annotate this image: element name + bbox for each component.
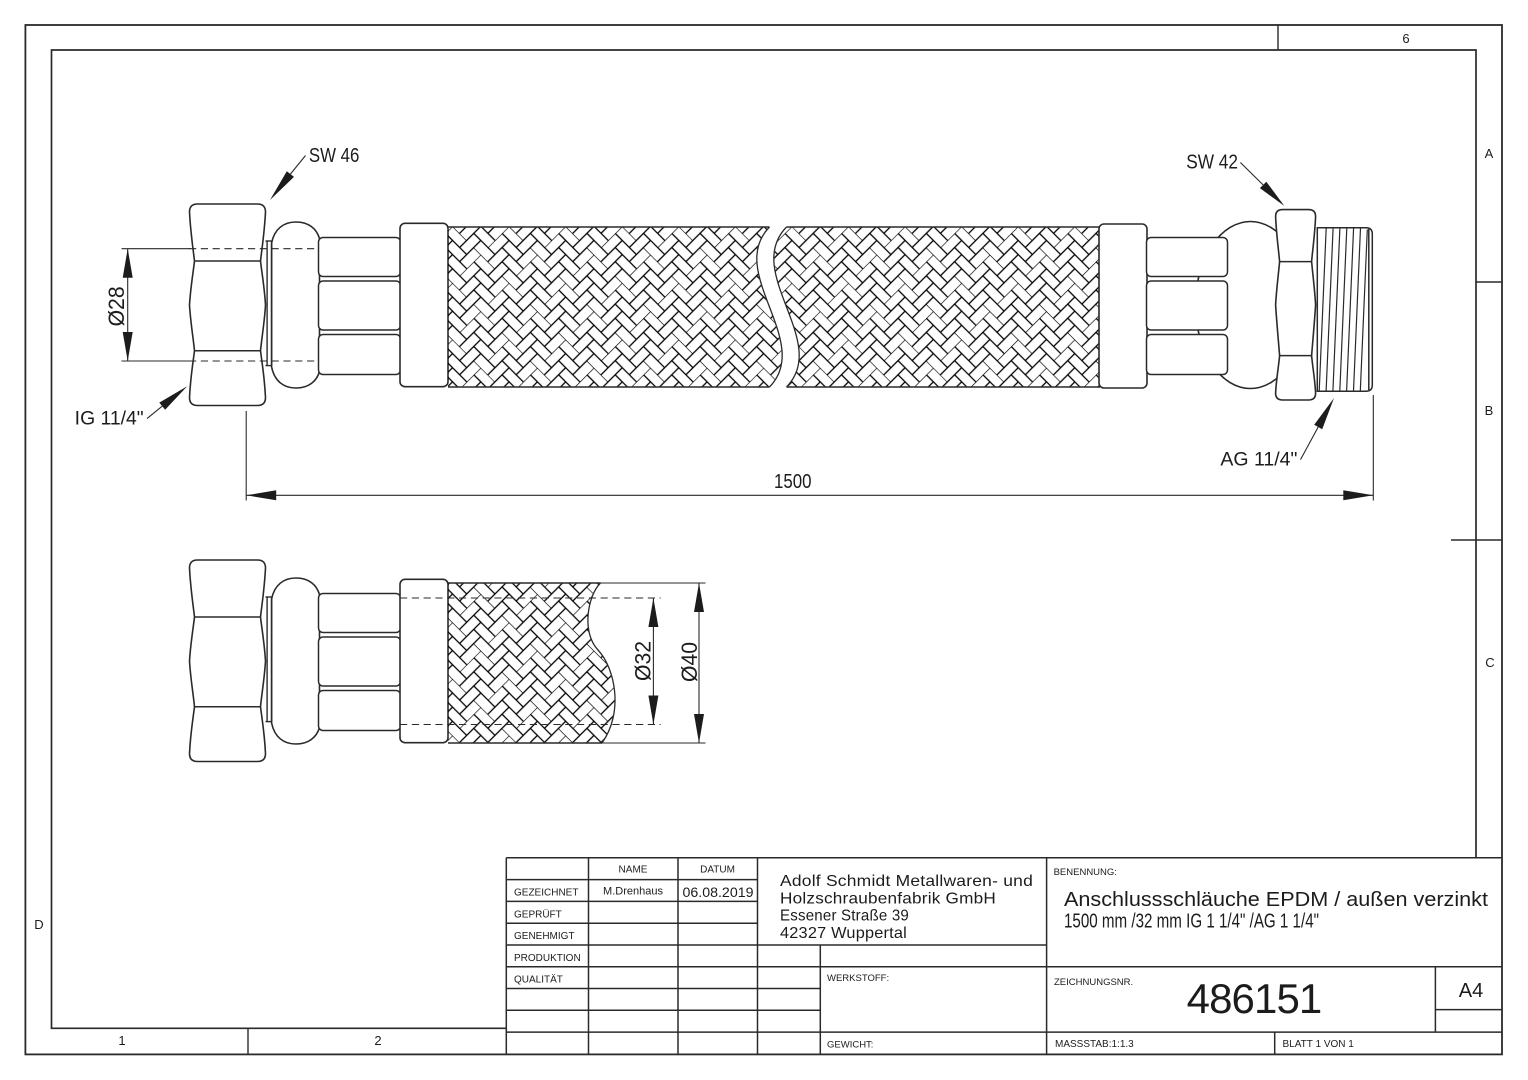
svg-text:486151: 486151 — [1187, 975, 1322, 1022]
svg-text:6: 6 — [1402, 31, 1409, 46]
svg-text:06.08.2019: 06.08.2019 — [683, 885, 754, 900]
svg-text:1500 mm /32 mm IG 1 1/4" /AG 1: 1500 mm /32 mm IG 1 1/4" /AG 1 1/4" — [1064, 911, 1319, 933]
svg-text:Ø40: Ø40 — [677, 642, 702, 682]
svg-text:GENEHMIGT: GENEHMIGT — [514, 931, 575, 942]
svg-text:D: D — [34, 917, 43, 932]
svg-text:Essener Straße 39: Essener Straße 39 — [780, 908, 909, 925]
svg-text:1: 1 — [118, 1033, 125, 1048]
svg-text:BENENNUNG:: BENENNUNG: — [1054, 867, 1117, 878]
svg-text:GEWICHT:: GEWICHT: — [827, 1039, 873, 1050]
svg-text:MASSSTAB:1:1.3: MASSSTAB:1:1.3 — [1055, 1039, 1134, 1050]
svg-text:B: B — [1485, 403, 1494, 418]
svg-text:WERKSTOFF:: WERKSTOFF: — [827, 973, 889, 984]
svg-text:Adolf Schmidt Metallwaren- und: Adolf Schmidt Metallwaren- und — [780, 873, 1033, 890]
svg-text:SW 42: SW 42 — [1186, 150, 1238, 173]
svg-text:42327 Wuppertal: 42327 Wuppertal — [780, 925, 907, 942]
svg-text:Anschlussschläuche EPDM / auße: Anschlussschläuche EPDM / außen verzinkt — [1064, 889, 1488, 911]
svg-text:C: C — [1485, 655, 1494, 670]
svg-text:QUALITÄT: QUALITÄT — [514, 974, 563, 986]
svg-text:M.Drenhaus: M.Drenhaus — [603, 886, 663, 898]
svg-text:Ø28: Ø28 — [104, 286, 129, 326]
svg-text:DATUM: DATUM — [700, 865, 735, 876]
svg-text:PRODUKTION: PRODUKTION — [514, 953, 581, 964]
svg-text:GEPRÜFT: GEPRÜFT — [514, 908, 562, 920]
svg-text:A: A — [1485, 146, 1494, 161]
svg-text:GEZEICHNET: GEZEICHNET — [514, 888, 578, 899]
svg-text:Holzschraubenfabrik GmbH: Holzschraubenfabrik GmbH — [780, 890, 996, 907]
svg-text:ZEICHNUNGSNR.: ZEICHNUNGSNR. — [1054, 977, 1133, 988]
svg-text:AG 11/4": AG 11/4" — [1220, 450, 1297, 471]
svg-text:BLATT 1 VON 1: BLATT 1 VON 1 — [1283, 1039, 1355, 1050]
svg-text:NAME: NAME — [619, 865, 648, 876]
svg-text:2: 2 — [374, 1033, 381, 1048]
svg-text:A4: A4 — [1459, 980, 1483, 1002]
svg-text:Ø32: Ø32 — [631, 641, 656, 681]
svg-text:SW 46: SW 46 — [309, 144, 360, 167]
svg-text:IG 11/4": IG 11/4" — [75, 408, 144, 429]
svg-text:1500: 1500 — [774, 470, 812, 493]
